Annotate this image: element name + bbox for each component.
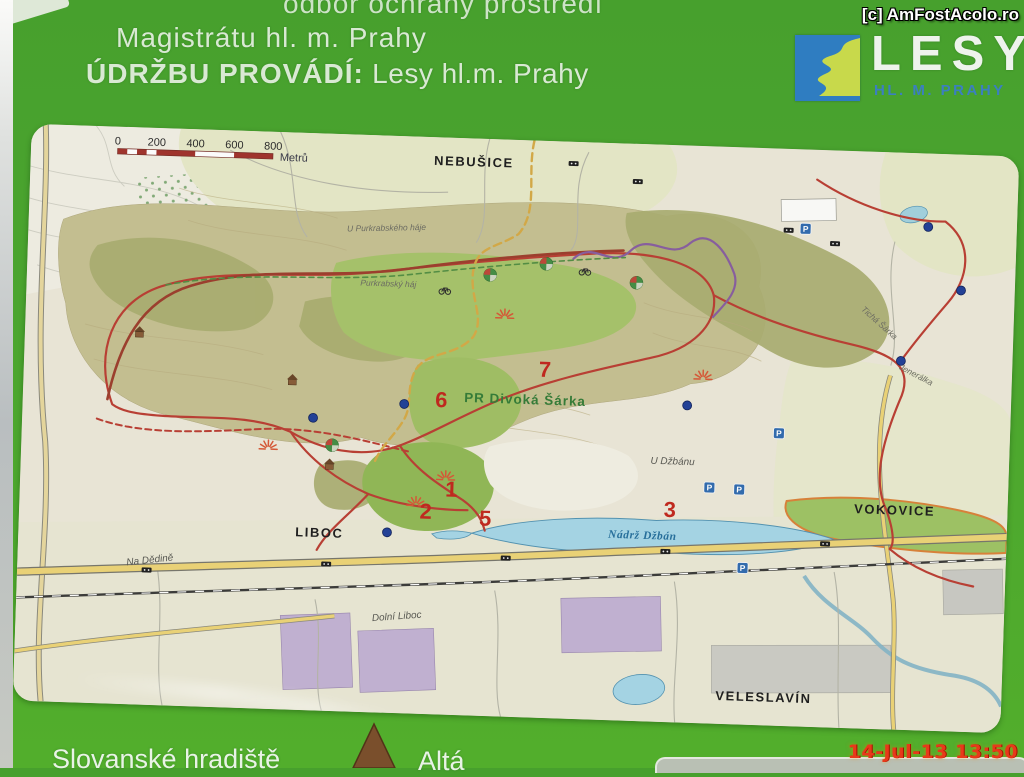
spring-icon [308,413,317,422]
label-nadrz-dzban: Nádrž Džbán [607,529,677,543]
playground-icon [484,268,497,281]
bus-stop-icon [784,228,794,233]
header-line3: ÚDRŽBU PROVÁDÍ: Lesy hl.m. Prahy [86,58,589,90]
scale-tick: 400 [186,138,205,151]
parking-icon: P [704,482,715,493]
lesy-logo-subtitle: HL. M. PRAHY [874,82,1006,99]
playground-icon [325,439,338,452]
route-number-6: 6 [435,387,448,412]
header-line2: Magistrátu hl. m. Prahy [116,22,427,54]
lesy-logo-title: LESY [871,26,1024,82]
route-number-3: 3 [663,497,676,522]
svg-text:P: P [740,563,746,573]
label-u-dzbanu: U Džbánu [650,456,695,468]
route-number-2: 2 [419,499,432,524]
bus-stop-icon [660,549,670,554]
scale-tick: 600 [225,139,244,152]
legend-item-altan-cutoff: Altá [418,746,465,777]
svg-text:P: P [706,482,712,492]
header-line1-cutoff: odbor ochrany prostředí [283,0,603,20]
label-purkrabsky-haj: Purkrabský háj [360,277,417,289]
parking-icon: P [800,223,811,234]
scale-tick: 200 [147,136,166,149]
parking-icon: P [737,562,748,573]
legend-item-hradiste: Slovanské hradiště [52,744,280,775]
playground-icon [630,276,643,289]
route-number-1: 1 [445,477,458,502]
playground-icon [540,257,553,270]
map-panel: P P P P P 0 200 400 600 800 Metrů NEBUŠI… [13,124,1020,733]
spring-icon [382,528,391,537]
bus-stop-icon [830,241,840,246]
bus-stop-icon [501,555,511,560]
forest-wave-icon [795,35,860,101]
scale-unit: Metrů [280,152,308,165]
topographic-map: P P P P P 0 200 400 600 800 Metrů NEBUŠI… [13,124,1020,733]
spring-icon [400,399,409,408]
svg-text:P: P [736,484,742,494]
spring-icon [924,222,933,231]
altan-triangle-icon [350,722,398,773]
route-number-7: 7 [538,357,551,382]
bus-stop-icon [142,567,152,572]
route-number-5: 5 [479,506,492,531]
spring-icon [683,401,692,410]
header-line3-label: ÚDRŽBU PROVÁDÍ: [86,58,364,89]
lesy-logo: LESY HL. M. PRAHY [795,30,1015,108]
photo-left-edge [0,0,13,768]
bus-stop-icon [569,161,579,166]
parking-icon: P [734,484,745,495]
parking-icon: P [773,428,784,439]
header-line3-value: Lesy hl.m. Prahy [364,58,589,89]
bus-stop-icon [633,179,643,184]
camera-timestamp: 14-Jul-13 13:50 [848,741,1018,763]
bus-stop-icon [820,541,830,546]
label-u-purkrabskeho-haje: U Purkrabského háje [347,222,426,233]
spring-icon [956,286,965,295]
label-liboc: LIBOC [295,524,344,541]
svg-text:P: P [803,224,809,234]
label-vokovice: VOKOVICE [854,501,935,519]
label-veleslavin: VELESLAVÍN [715,688,812,706]
watermark: [c] AmFostAcolo.ro [862,5,1019,25]
bus-stop-icon [321,561,331,566]
svg-text:P: P [776,428,782,438]
lesy-logo-mark [795,35,860,101]
scale-tick: 0 [115,135,121,147]
label-nebusice: NEBUŠICE [434,153,514,171]
